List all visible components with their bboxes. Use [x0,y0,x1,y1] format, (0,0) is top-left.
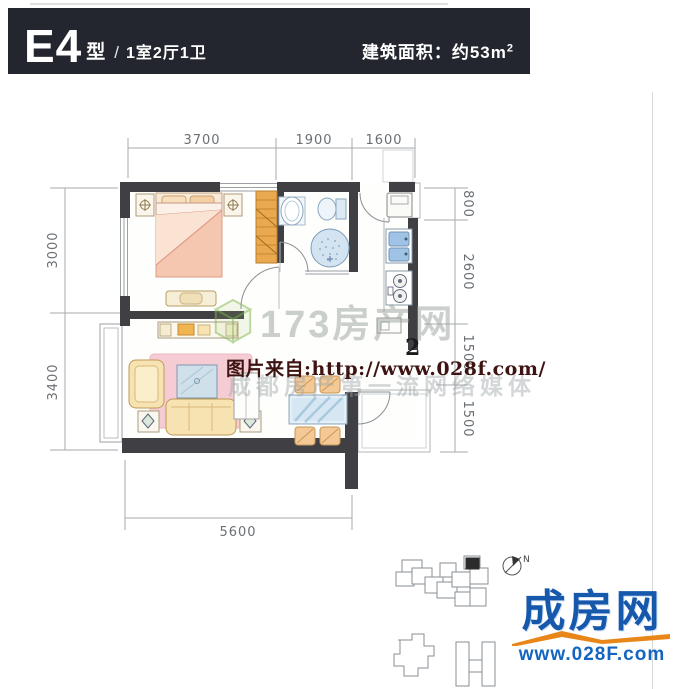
dim-right-2600: 2600 [460,253,475,290]
site-logo: 成房网 www.028F.com [512,590,672,666]
dim-right-1500b: 1500 [460,400,475,437]
toilet-tank [336,199,346,219]
wardrobe [256,191,277,263]
site-plan [394,556,495,686]
north-arrow: N [503,555,530,575]
building-footprint [456,642,495,686]
building-footprint [394,634,434,676]
dim-left-3400: 3400 [46,363,61,400]
toilet-bowl [318,198,336,220]
highlighted-unit [466,558,479,569]
sofa [166,399,236,435]
dim-right-800: 800 [460,190,475,218]
dim-top-1900: 1900 [295,133,332,148]
site-logo-url: www.028F.com [512,644,672,666]
dim-right-1500a: 1500 [460,334,475,371]
floor-plan-canvas: 3700 1900 1600 3000 3400 800 2600 1500 1… [0,0,700,689]
dim-top-1600: 1600 [365,133,402,148]
north-label: N [523,555,530,565]
dim-top-3700: 3700 [183,133,220,148]
floor-plan [100,150,430,489]
site-logo-name: 成房网 [512,590,672,634]
dim-left-3000: 3000 [46,231,61,268]
dim-bottom-5600: 5600 [219,525,256,540]
